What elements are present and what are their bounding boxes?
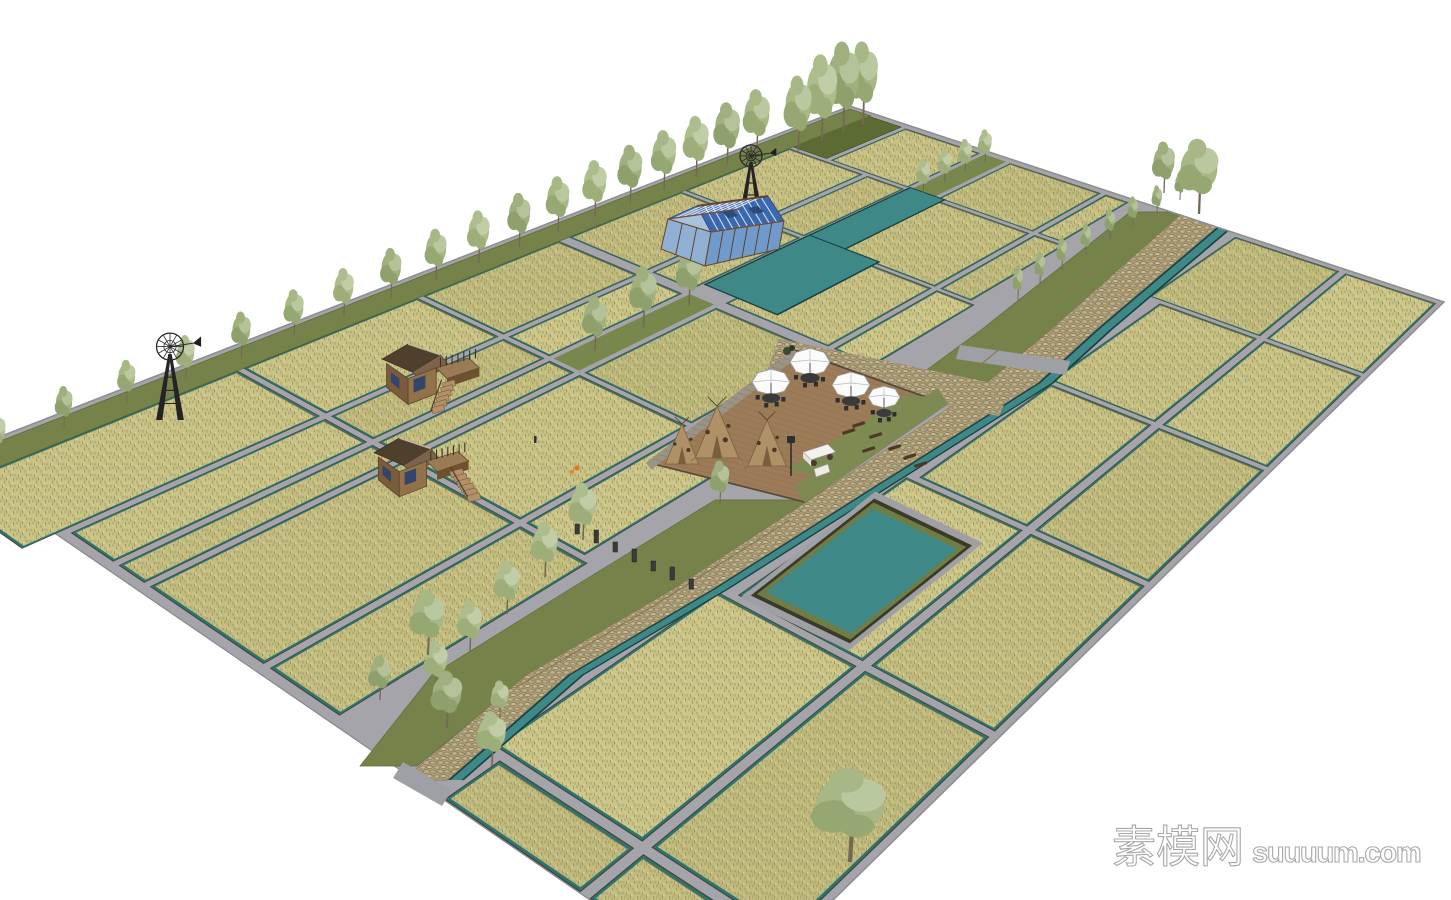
svg-text:素模网: 素模网 — [1112, 823, 1244, 872]
svg-text:suuuum.com: suuuum.com — [1252, 837, 1420, 869]
